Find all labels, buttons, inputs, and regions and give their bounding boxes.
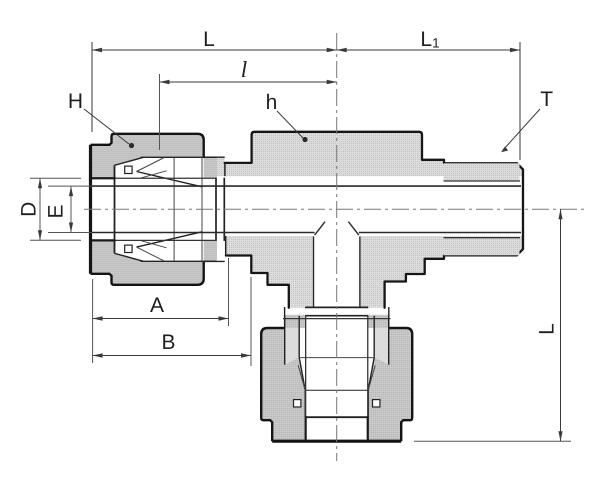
svg-text:L: L xyxy=(203,28,215,51)
svg-text:A: A xyxy=(150,294,164,317)
svg-text:l: l xyxy=(241,57,247,82)
svg-text:H: H xyxy=(68,90,83,113)
svg-text:E: E xyxy=(45,204,68,218)
svg-text:D: D xyxy=(18,202,41,217)
svg-text:T: T xyxy=(540,88,553,111)
svg-text:B: B xyxy=(161,331,175,354)
svg-text:h: h xyxy=(266,91,278,114)
svg-text:L: L xyxy=(536,323,559,335)
